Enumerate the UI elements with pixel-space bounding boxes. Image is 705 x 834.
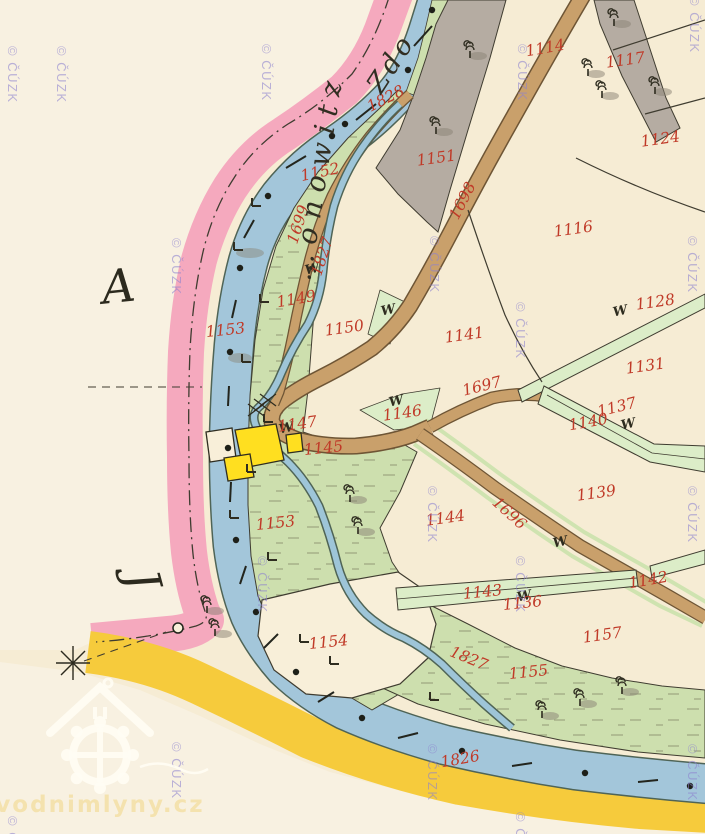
cuzk-watermark: © ČÚZK [425, 744, 440, 802]
cuzk-watermark: © ČÚZK [687, 0, 702, 54]
cuzk-watermark: © ČÚZK [685, 236, 700, 294]
cuzk-watermark: © ČÚZK [515, 44, 530, 102]
cuzk-watermark: © ČÚZK [513, 302, 528, 360]
cuzk-watermark: © ČÚZK [5, 46, 20, 104]
boundary-corner-marker [173, 623, 183, 633]
cadastral-map-scan: W W W W W W W W 1828 1114 1117 1124 1151… [0, 0, 705, 834]
cuzk-watermark: © ČÚZK [169, 238, 184, 296]
mill-building-lower [224, 454, 254, 481]
cuzk-watermark: © ČÚZK [685, 744, 700, 802]
map-canvas: W W W W W W W W 1828 1114 1117 1124 1151… [0, 0, 705, 834]
cuzk-watermark: © ČÚZK [5, 816, 20, 834]
mill-building-small [286, 433, 303, 453]
triangulation-star [56, 646, 90, 680]
logo-site-text: vodnimlyny.cz [0, 792, 205, 818]
cuzk-watermark: © ČÚZK [513, 812, 528, 834]
cuzk-watermark: © ČÚZK [513, 556, 528, 614]
cuzk-watermark: © ČÚZK [427, 236, 442, 294]
cuzk-watermark: © ČÚZK [259, 44, 274, 102]
cuzk-watermark: © ČÚZK [54, 46, 69, 104]
cuzk-watermark: © ČÚZK [255, 556, 270, 614]
cuzk-watermark: © ČÚZK [425, 486, 440, 544]
cuzk-watermark: © ČÚZK [685, 486, 700, 544]
